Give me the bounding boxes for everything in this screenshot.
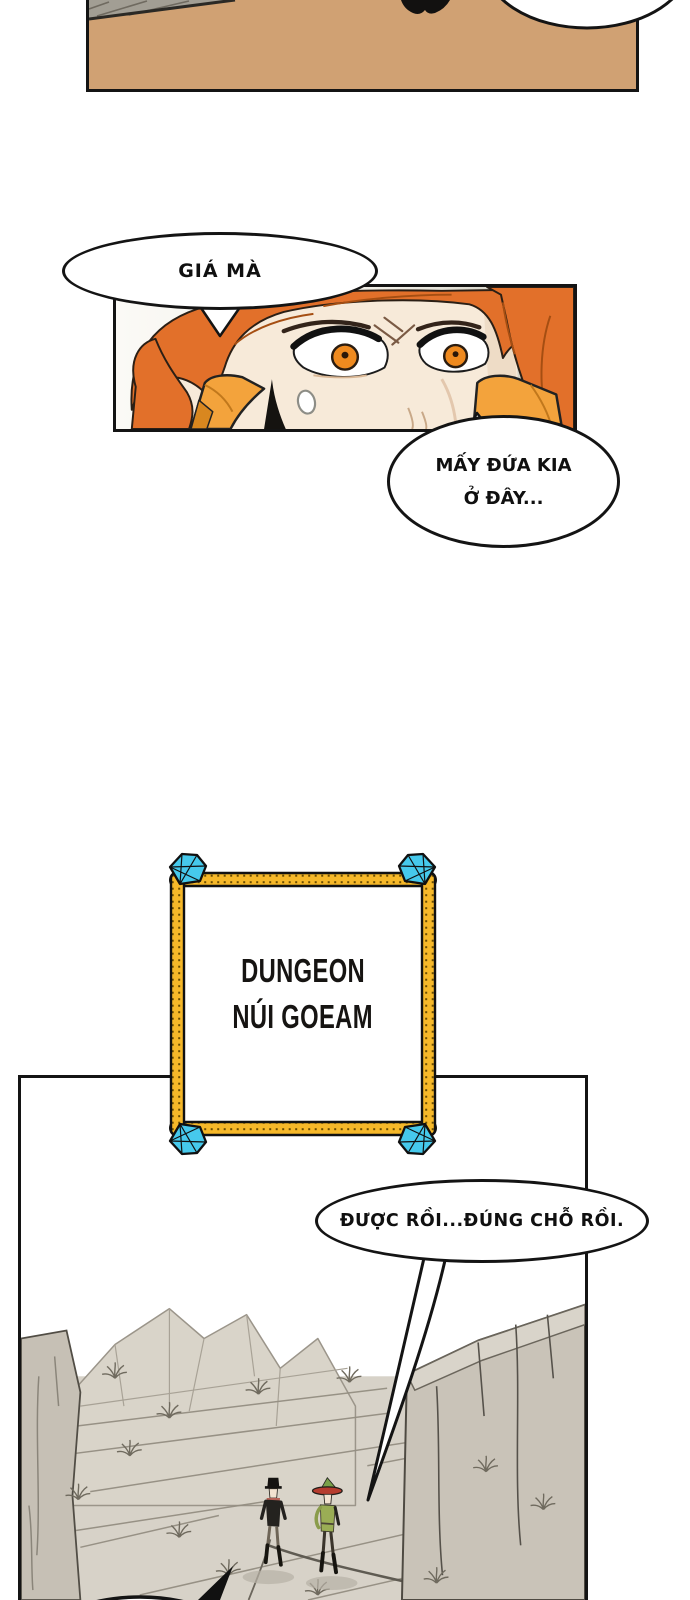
plaque-line-2: NÚI GOEAM [233, 994, 374, 1040]
speech-bubble-bottom-partial [30, 1558, 260, 1600]
speech-bubble-duoc-roi-tail [355, 1248, 455, 1508]
speech-bubble-duoc-roi: ĐƯỢC RỒI...ĐÚNG CHỖ RỒI. [315, 1179, 649, 1263]
speech-bubble-top-right-partial [455, 0, 690, 40]
bubble-text-gia-ma: GIÁ MÀ [178, 260, 262, 282]
plaque-line-1: DUNGEON [241, 948, 365, 994]
speech-bubble-gia-ma: GIÁ MÀ [62, 232, 378, 310]
bubble-text-may-dua-line2: Ở ĐÂY... [464, 482, 544, 515]
dungeon-plaque-title: DUNGEON NÚI GOEAM [171, 948, 435, 1048]
speech-bubble-may-dua: MẤY ĐỨA KIA Ở ĐÂY... [387, 415, 620, 548]
bubble-text-duoc-roi: ĐƯỢC RỒI...ĐÚNG CHỖ RỒI. [340, 1211, 624, 1231]
bubble-text-may-dua-line1: MẤY ĐỨA KIA [435, 449, 571, 482]
comic-page: GIÁ MÀ MẤY ĐỨA KIA Ở ĐÂY... [0, 0, 690, 1600]
